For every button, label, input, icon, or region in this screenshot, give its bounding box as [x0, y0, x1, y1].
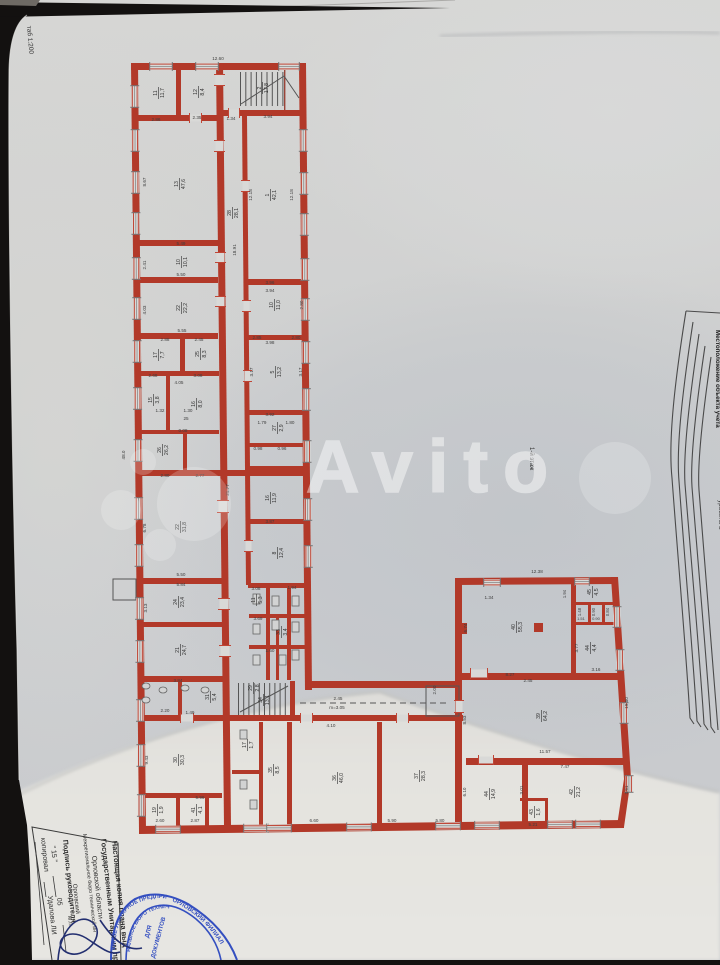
svg-text:16: 16 [191, 401, 197, 407]
svg-text:3.98: 3.98 [266, 340, 275, 345]
svg-text:3.08: 3.08 [252, 586, 261, 591]
svg-text:2.00: 2.00 [432, 685, 437, 694]
svg-text:8,5: 8,5 [275, 766, 281, 773]
svg-text:12.38: 12.38 [531, 569, 543, 574]
svg-text:2.80: 2.80 [299, 300, 304, 309]
svg-text:3.84: 3.84 [174, 678, 183, 683]
svg-text:2.80: 2.80 [292, 335, 301, 340]
svg-text:64,2: 64,2 [543, 711, 549, 721]
svg-text:5,4: 5,4 [212, 693, 218, 700]
svg-text:24,7: 24,7 [182, 645, 188, 655]
svg-text:3.17: 3.17 [298, 367, 303, 376]
svg-text:0.98: 0.98 [254, 446, 263, 451]
svg-text:6.60: 6.60 [310, 818, 319, 823]
svg-text:5.96: 5.96 [196, 795, 205, 800]
svg-text:1,9: 1,9 [159, 806, 165, 813]
svg-text:16: 16 [265, 495, 271, 501]
svg-text:1,7: 1,7 [249, 741, 255, 748]
svg-text:5.50: 5.50 [177, 572, 186, 577]
svg-text:1.94: 1.94 [288, 585, 297, 590]
svg-text:9.43: 9.43 [144, 755, 149, 764]
svg-text:43: 43 [529, 809, 535, 815]
svg-text:45: 45 [587, 589, 593, 595]
svg-text:18.91: 18.91 [232, 244, 237, 256]
svg-text:3.92: 3.92 [266, 412, 275, 417]
svg-text:37: 37 [414, 773, 420, 779]
svg-text:12.18: 12.18 [248, 189, 253, 201]
svg-text:2.45: 2.45 [334, 696, 343, 701]
svg-text:41: 41 [191, 807, 197, 813]
svg-text:2.20: 2.20 [161, 708, 170, 713]
svg-text:1.34: 1.34 [227, 116, 236, 121]
svg-text:2.87: 2.87 [191, 818, 200, 823]
svg-text:8.53: 8.53 [462, 715, 467, 724]
svg-text:11,9: 11,9 [272, 493, 278, 503]
svg-text:2.35: 2.35 [193, 115, 202, 120]
svg-text:5.50: 5.50 [177, 272, 186, 277]
svg-text:28: 28 [227, 210, 233, 216]
svg-text:25: 25 [195, 351, 201, 357]
svg-text:21,2: 21,2 [576, 787, 582, 797]
svg-text:1.48: 1.48 [577, 607, 582, 616]
svg-text:11,7: 11,7 [160, 88, 166, 98]
svg-text:4,4: 4,4 [592, 644, 598, 651]
svg-text:27: 27 [272, 425, 278, 431]
svg-text:11,0: 11,0 [276, 300, 282, 310]
svg-text:26,2: 26,2 [164, 445, 170, 455]
svg-text:23,4: 23,4 [180, 597, 186, 607]
svg-text:8,4: 8,4 [200, 88, 206, 95]
svg-text:17: 17 [153, 352, 159, 358]
svg-text:10: 10 [176, 259, 182, 265]
svg-text:13: 13 [174, 181, 180, 187]
svg-text:3.94: 3.94 [266, 288, 275, 293]
svg-text:6.10: 6.10 [462, 787, 467, 796]
svg-text:15: 15 [148, 397, 154, 403]
svg-text:33: 33 [276, 629, 282, 635]
svg-text:29: 29 [248, 685, 254, 691]
svg-text:5.21: 5.21 [529, 822, 538, 827]
svg-text:5.55: 5.55 [178, 328, 187, 333]
svg-text:1.80: 1.80 [286, 420, 295, 425]
svg-text:1.51: 1.51 [577, 616, 586, 621]
svg-text:3.16: 3.16 [592, 667, 601, 672]
svg-text:2.85: 2.85 [253, 335, 262, 340]
svg-text:36: 36 [332, 775, 338, 781]
svg-text:22,2: 22,2 [183, 303, 189, 313]
svg-text:0.84: 0.84 [605, 607, 610, 616]
svg-text:30: 30 [173, 757, 179, 763]
svg-text:11.57: 11.57 [539, 749, 551, 754]
svg-text:0.90: 0.90 [592, 616, 601, 621]
svg-text:46,0: 46,0 [339, 773, 345, 783]
svg-text:19: 19 [152, 807, 158, 813]
svg-text:3,8: 3,8 [155, 396, 161, 403]
svg-text:3.01: 3.01 [519, 785, 524, 794]
svg-text:2.41: 2.41 [142, 260, 147, 269]
svg-text:2.45: 2.45 [524, 678, 533, 683]
svg-text:5.90: 5.90 [388, 818, 397, 823]
svg-text:1.49: 1.49 [186, 710, 195, 715]
svg-text:4.10: 4.10 [327, 723, 336, 728]
svg-text:11: 11 [251, 597, 257, 602]
svg-text:13,1: 13,1 [265, 695, 271, 705]
svg-text:44: 44 [484, 791, 490, 797]
svg-text:05: 05 [55, 897, 63, 906]
svg-text:7,7: 7,7 [160, 351, 166, 358]
svg-text:1.30: 1.30 [184, 408, 193, 413]
svg-text:25: 25 [183, 416, 189, 421]
svg-text:0.90: 0.90 [591, 607, 596, 616]
svg-text:19.80: 19.80 [624, 697, 629, 709]
svg-text:39: 39 [536, 713, 542, 719]
svg-text:4.05: 4.05 [175, 380, 184, 385]
svg-text:5: 5 [270, 370, 276, 373]
svg-text:1.32: 1.32 [156, 408, 165, 413]
svg-text:31: 31 [205, 694, 211, 700]
svg-text:35: 35 [268, 767, 274, 773]
svg-text:3.13: 3.13 [143, 603, 148, 612]
svg-text:17: 17 [242, 742, 248, 748]
svg-text:2,9: 2,9 [279, 424, 285, 431]
svg-text:2.86: 2.86 [152, 117, 161, 122]
svg-text:28,1: 28,1 [234, 208, 240, 218]
svg-text:1.79: 1.79 [258, 420, 267, 425]
svg-text:10,1: 10,1 [183, 257, 189, 267]
svg-text:3.69: 3.69 [254, 616, 263, 621]
svg-text:2.68: 2.68 [149, 373, 158, 378]
svg-text:2,8: 2,8 [255, 684, 261, 691]
svg-text:3.08: 3.08 [194, 373, 203, 378]
svg-text:12.60: 12.60 [212, 56, 224, 61]
svg-text:11: 11 [153, 90, 159, 95]
svg-text:6.78: 6.78 [142, 523, 147, 532]
svg-text:24: 24 [173, 599, 179, 605]
svg-text:28,3: 28,3 [421, 771, 427, 781]
svg-text:17,8: 17,8 [264, 83, 270, 93]
svg-text:8.67: 8.67 [142, 177, 147, 186]
svg-text:4,1: 4,1 [198, 806, 204, 813]
svg-text:2.60: 2.60 [156, 818, 165, 823]
svg-text:m=3.05: m=3.05 [329, 705, 345, 710]
svg-text:5.84: 5.84 [177, 582, 186, 587]
svg-text:42: 42 [569, 789, 575, 795]
svg-text:8.27: 8.27 [506, 672, 515, 677]
svg-text:5,3: 5,3 [258, 596, 264, 603]
svg-text:3.96: 3.96 [266, 280, 275, 285]
svg-text:0.96: 0.96 [278, 446, 287, 451]
svg-text:Местоположение объекта учета: Местоположение объекта учета [714, 330, 720, 428]
svg-text:3,4: 3,4 [283, 628, 289, 635]
svg-text:26: 26 [157, 447, 163, 453]
svg-text:47,6: 47,6 [181, 179, 187, 189]
svg-text:1.60: 1.60 [266, 648, 275, 653]
svg-text:55,3: 55,3 [518, 622, 524, 632]
svg-text:0.08: 0.08 [179, 428, 188, 433]
svg-text:30,3: 30,3 [180, 755, 186, 765]
svg-text:42,1: 42,1 [272, 190, 278, 200]
svg-text:22: 22 [176, 305, 182, 311]
svg-text:2: 2 [257, 86, 263, 89]
svg-text:3.17: 3.17 [249, 367, 254, 376]
svg-text:3.77: 3.77 [574, 643, 579, 652]
svg-text:14,9: 14,9 [491, 789, 497, 799]
svg-text:13,2: 13,2 [277, 367, 283, 377]
svg-text:40: 40 [511, 624, 517, 630]
svg-text:5.80: 5.80 [436, 818, 445, 823]
svg-text:8,3: 8,3 [202, 350, 208, 357]
svg-text:1: 1 [265, 193, 271, 196]
svg-text:3.94: 3.94 [264, 114, 273, 119]
svg-text:3.87: 3.87 [266, 519, 275, 524]
svg-text:7.47: 7.47 [561, 764, 570, 769]
svg-text:48.0: 48.0 [121, 450, 126, 459]
svg-text:6.74: 6.74 [463, 623, 468, 632]
svg-text:4.03: 4.03 [142, 305, 147, 314]
svg-text:4,5: 4,5 [594, 588, 600, 595]
svg-text:2.88: 2.88 [161, 337, 170, 342]
svg-text:1.94: 1.94 [562, 589, 567, 598]
svg-text:10: 10 [269, 302, 275, 308]
svg-text:12.18: 12.18 [289, 189, 294, 201]
svg-text:Avito: Avito [306, 425, 563, 508]
svg-text:34: 34 [258, 697, 264, 703]
svg-text:2.45: 2.45 [195, 337, 204, 342]
svg-text:12: 12 [193, 89, 199, 95]
svg-text:8: 8 [272, 551, 278, 554]
svg-text:8,0: 8,0 [198, 400, 204, 407]
svg-text:44: 44 [585, 645, 591, 651]
svg-text:21: 21 [175, 647, 181, 653]
svg-text:12,4: 12,4 [279, 548, 285, 558]
svg-text:3.61: 3.61 [624, 785, 629, 794]
svg-text:1,6: 1,6 [536, 808, 542, 815]
svg-text:1.34: 1.34 [485, 595, 494, 600]
svg-text:5.49: 5.49 [177, 241, 186, 246]
